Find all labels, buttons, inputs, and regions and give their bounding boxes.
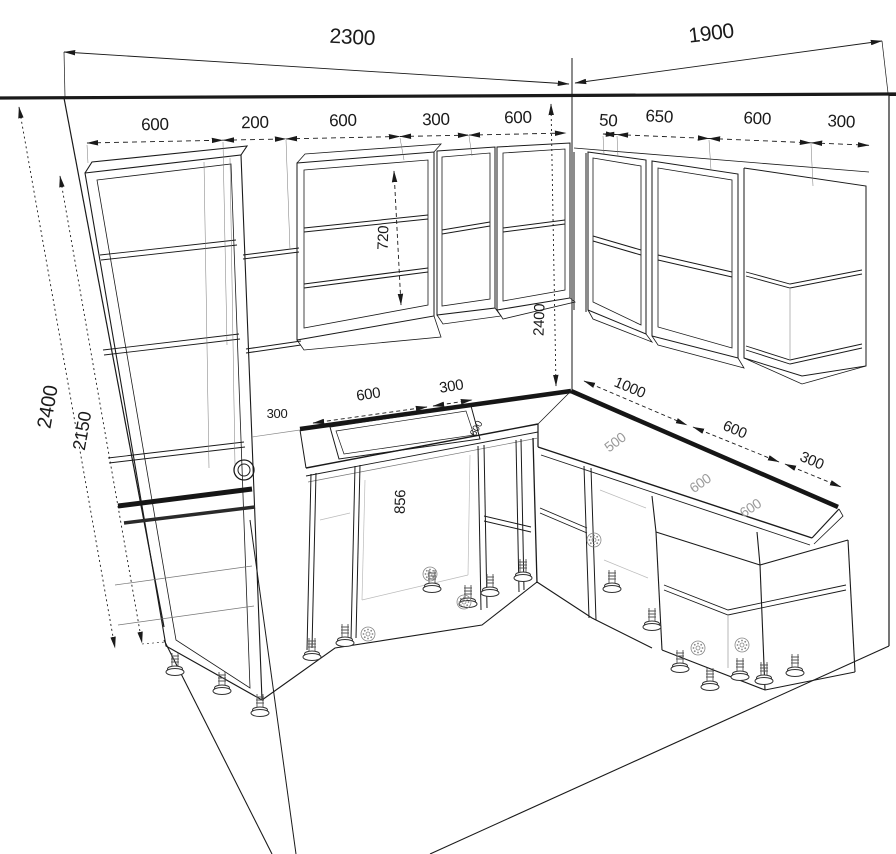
dim-wall-left-4: 600 <box>504 108 532 127</box>
wall-cabinet-650 <box>588 152 652 342</box>
corner-wall-cabinet-right <box>744 168 866 384</box>
dim-wall-cab-height-720: 720 <box>375 225 393 250</box>
base-left-bottom-edge <box>262 582 537 700</box>
base-cabinets-right <box>537 466 652 648</box>
open-shelves-200 <box>243 248 301 353</box>
floor-edge-right <box>430 646 889 854</box>
filler-50 <box>574 152 586 312</box>
oven-knob-inner-icon <box>238 464 250 476</box>
tall-cabinet-top <box>85 146 247 173</box>
label-hidden-300: 300 <box>267 406 288 421</box>
base-left-hidden-lines <box>320 455 470 600</box>
dim-line-720 <box>394 171 401 305</box>
dim-counter-right-1000: 1000 <box>612 374 648 402</box>
wall-cabinet-600-right <box>652 161 744 368</box>
countertop <box>252 391 843 545</box>
label-base-width-600a: 600 <box>686 470 714 496</box>
dim-row-left <box>87 133 566 143</box>
dim-wall-right-1: 650 <box>645 106 673 126</box>
dim-top-right-wall: 1900 <box>687 19 735 47</box>
backsplash-left <box>300 391 571 429</box>
counter-left-end <box>300 430 306 468</box>
dim-wall-right-3: 300 <box>827 111 855 131</box>
corner-base-shelf <box>664 585 846 615</box>
kitchen-wireframe-svg: 2300 1900 600 200 600 300 600 50 650 600… <box>0 0 896 854</box>
dim-counter-left-300: 300 <box>438 376 465 397</box>
dim-wall-right-0: 50 <box>599 111 618 131</box>
dim-row-right <box>603 134 869 145</box>
dim-wall-left-1: 200 <box>241 113 269 132</box>
label-base-width-600b: 600 <box>736 495 764 521</box>
dim-line-2300 <box>64 52 569 84</box>
dim-height-ceiling: 2400 <box>33 384 62 431</box>
tall-cabinet-inner-frame <box>97 164 250 688</box>
dim-counter-right-300: 300 <box>797 448 826 473</box>
extension-lines <box>87 136 813 468</box>
dim-height-tall-unit: 2150 <box>69 410 95 452</box>
dim-line-2400-corner <box>551 104 556 386</box>
label-counter-depth-500: 500 <box>601 429 629 456</box>
base-cabinets-left <box>262 438 538 700</box>
base-left-shelves <box>484 516 531 532</box>
dim-wall-left-0: 600 <box>141 115 169 134</box>
base-left-dividers <box>307 438 537 650</box>
dim-wall-left-3: 300 <box>422 110 450 129</box>
room-walls-floor <box>0 58 896 854</box>
right-wall-units-top-edge <box>574 148 869 172</box>
tall-cabinet-front <box>85 155 262 700</box>
base-right-hidden-lines <box>600 490 648 578</box>
dim-line-1900 <box>575 41 882 83</box>
dim-base-height-856: 856 <box>392 489 410 514</box>
wall-top-edge <box>0 94 896 98</box>
dim-counter-right-600: 600 <box>720 417 749 442</box>
tall-cabinet-shelves <box>100 240 254 625</box>
corner-wall-cabinet-left <box>497 143 575 319</box>
dim-line-2150-left <box>60 176 142 643</box>
dim-top-left-wall: 2300 <box>329 25 376 50</box>
base-right-bottom-edge <box>537 582 652 648</box>
dim-wall-left-2: 600 <box>329 111 357 130</box>
wall-units-right <box>574 148 869 384</box>
dim-corner-wall-height-2400: 2400 <box>530 303 548 336</box>
wall-units-left <box>243 143 575 353</box>
dim-counter-left-600: 600 <box>355 384 382 405</box>
dim-line-2400-left <box>19 107 115 648</box>
oven-knob-icon <box>234 460 254 480</box>
wall-cabinet-300 <box>437 147 501 324</box>
dim-wall-right-2: 600 <box>743 108 771 128</box>
tall-cabinet <box>85 146 262 700</box>
label-hidden-600: 600 <box>468 419 485 439</box>
wall-cabinet-600 <box>297 144 441 350</box>
kitchen-drawing-canvas: 2300 1900 600 200 600 300 600 50 650 600… <box>0 0 896 854</box>
